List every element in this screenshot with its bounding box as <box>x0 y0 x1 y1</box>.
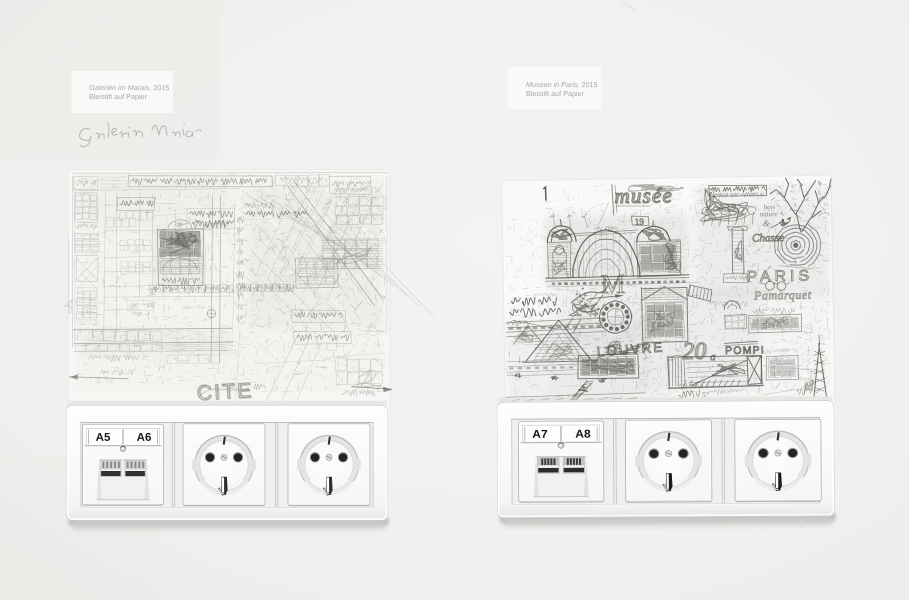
svg-text:Bleistift auf Papier: Bleistift auf Papier <box>526 89 585 98</box>
svg-text:nature: nature <box>760 210 778 218</box>
svg-text:&: & <box>763 218 770 228</box>
svg-text:A6: A6 <box>137 432 152 444</box>
svg-text:Pamarquet: Pamarquet <box>753 288 812 303</box>
svg-text:Museen in Paris, 2015: Museen in Paris, 2015 <box>526 80 598 89</box>
svg-text:A5: A5 <box>96 432 111 444</box>
svg-text:Bleistift auf Papier: Bleistift auf Papier <box>89 92 148 101</box>
svg-text:Galerien im Marais, 2015: Galerien im Marais, 2015 <box>89 83 169 92</box>
svg-text:A8: A8 <box>575 429 591 441</box>
svg-text:A7: A7 <box>532 429 547 441</box>
